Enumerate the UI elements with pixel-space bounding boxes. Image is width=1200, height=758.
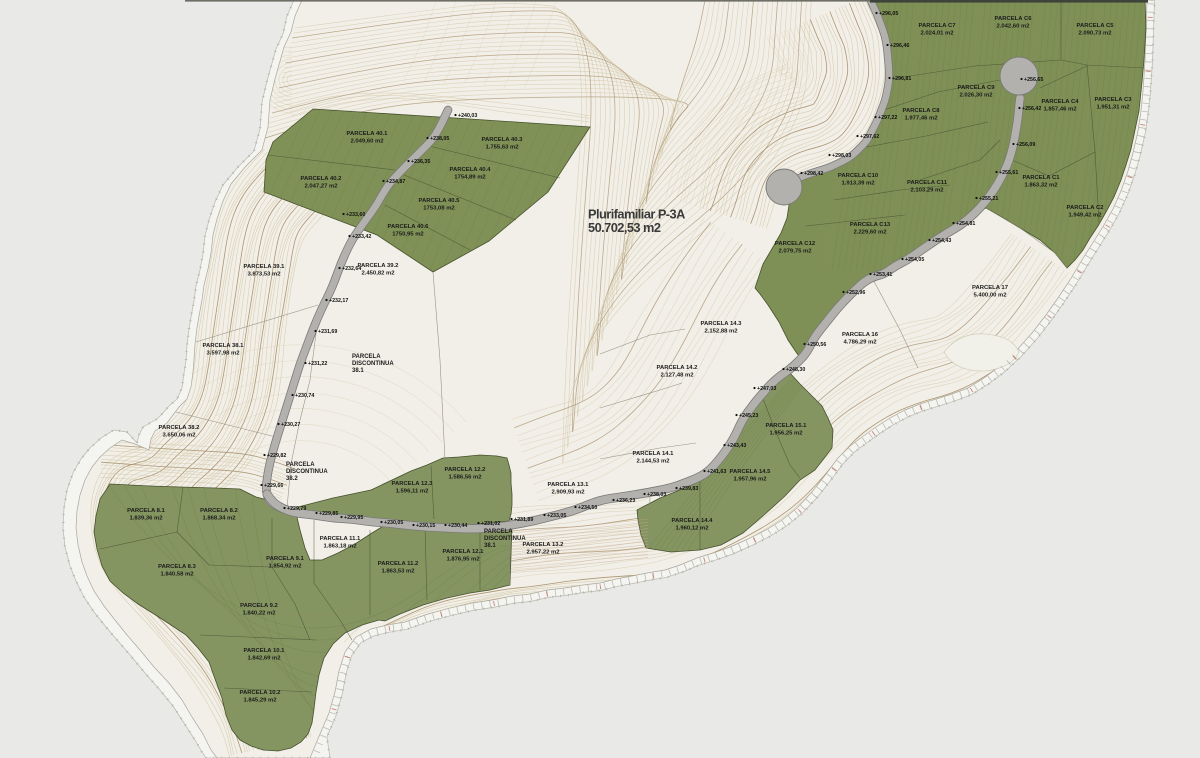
- svg-text:2.229,60 m2: 2.229,60 m2: [853, 230, 887, 236]
- svg-text:DISCONTINUA: DISCONTINUA: [352, 361, 394, 367]
- svg-text:1.596,11 m2: 1.596,11 m2: [396, 489, 429, 495]
- svg-text:+254,05: +254,05: [905, 257, 924, 263]
- svg-text:+248,30: +248,30: [786, 367, 805, 373]
- svg-text:1.951,31 m2: 1.951,31 m2: [1096, 105, 1130, 111]
- svg-text:+229,85: +229,85: [319, 511, 338, 517]
- svg-text:PARCELA 8.2: PARCELA 8.2: [200, 508, 238, 514]
- svg-text:PARCELA 16: PARCELA 16: [842, 332, 879, 338]
- svg-text:PARCELA 17: PARCELA 17: [972, 285, 1009, 291]
- svg-text:2.049,60 m2: 2.049,60 m2: [350, 139, 384, 145]
- svg-text:+255,21: +255,21: [979, 196, 998, 202]
- svg-text:1.755,63 m2: 1.755,63 m2: [485, 145, 519, 151]
- svg-text:3.650,06 m2: 3.650,06 m2: [162, 433, 196, 439]
- svg-text:2.079,75 m2: 2.079,75 m2: [778, 249, 812, 255]
- svg-text:1.842,69 m2: 1.842,69 m2: [247, 656, 281, 662]
- svg-text:+234,87: +234,87: [386, 179, 405, 185]
- svg-text:PARCELA: PARCELA: [352, 354, 381, 360]
- svg-text:2.450,82 m2: 2.450,82 m2: [361, 271, 395, 277]
- svg-text:+255,61: +255,61: [999, 170, 1018, 176]
- svg-text:PARCELA 10.2: PARCELA 10.2: [240, 690, 282, 696]
- svg-text:+230,15: +230,15: [416, 523, 435, 529]
- svg-text:1.840,58 m2: 1.840,58 m2: [160, 572, 194, 578]
- svg-text:+229,66: +229,66: [264, 483, 283, 489]
- svg-text:+230,27: +230,27: [281, 422, 300, 428]
- svg-text:1753,08 m2: 1753,08 m2: [423, 206, 455, 212]
- svg-text:+236,23: +236,23: [616, 498, 635, 504]
- svg-text:PARCELA: PARCELA: [484, 529, 513, 535]
- svg-text:2.047,27 m2: 2.047,27 m2: [304, 184, 338, 190]
- svg-text:PARCELA C10: PARCELA C10: [838, 173, 879, 179]
- svg-text:2.103,29 m2: 2.103,29 m2: [910, 188, 944, 194]
- svg-text:1.956,25 m2: 1.956,25 m2: [769, 431, 803, 437]
- svg-text:PARCELA 40.4: PARCELA 40.4: [450, 167, 492, 173]
- svg-text:+233,42: +233,42: [352, 234, 371, 240]
- svg-text:5.400,00 m2: 5.400,00 m2: [973, 293, 1007, 299]
- svg-text:PARCELA C12: PARCELA C12: [775, 241, 816, 247]
- svg-text:PARCELA C7: PARCELA C7: [919, 23, 957, 29]
- svg-text:PARCELA 40.3: PARCELA 40.3: [482, 137, 524, 143]
- svg-text:1.840,22 m2: 1.840,22 m2: [242, 611, 276, 617]
- svg-text:+296,46: +296,46: [890, 43, 909, 49]
- svg-text:PARCELA 38.2: PARCELA 38.2: [159, 425, 201, 431]
- svg-text:PARCELA 14.1: PARCELA 14.1: [633, 451, 675, 457]
- svg-text:+232,64: +232,64: [342, 266, 361, 272]
- svg-text:PARCELA 40.6: PARCELA 40.6: [388, 224, 430, 230]
- svg-text:2.909,93 m2: 2.909,93 m2: [551, 490, 585, 496]
- svg-text:2.024,01 m2: 2.024,01 m2: [920, 31, 954, 37]
- svg-text:PARCELA 12.1: PARCELA 12.1: [443, 549, 485, 555]
- svg-text:1.957,96 m2: 1.957,96 m2: [733, 477, 767, 483]
- svg-text:1.949,42 m2: 1.949,42 m2: [1068, 213, 1102, 219]
- svg-text:+238,05: +238,05: [430, 136, 449, 142]
- svg-text:38.1: 38.1: [352, 368, 364, 374]
- svg-text:1.839,36 m2: 1.839,36 m2: [129, 516, 163, 522]
- svg-text:PARCELA C6: PARCELA C6: [995, 16, 1033, 22]
- svg-text:1.977,46 m2: 1.977,46 m2: [904, 116, 938, 122]
- svg-text:DISCONTINUA: DISCONTINUA: [286, 469, 328, 475]
- svg-text:PARCELA C5: PARCELA C5: [1077, 23, 1115, 29]
- svg-text:4.786,29 m2: 4.786,29 m2: [843, 340, 877, 346]
- svg-text:PARCELA 10.1: PARCELA 10.1: [244, 648, 286, 654]
- svg-text:PARCELA 40.2: PARCELA 40.2: [301, 176, 343, 182]
- svg-text:2.152,88 m2: 2.152,88 m2: [704, 329, 738, 335]
- svg-text:2.042,60 m2: 2.042,60 m2: [996, 24, 1030, 30]
- svg-text:DISCONTINUA: DISCONTINUA: [484, 536, 526, 542]
- svg-text:+254,81: +254,81: [956, 221, 975, 227]
- svg-text:1.586,56 m2: 1.586,56 m2: [448, 475, 482, 481]
- svg-text:+296,05: +296,05: [879, 11, 898, 17]
- svg-text:38.2: 38.2: [286, 476, 298, 482]
- svg-text:PARCELA 12.2: PARCELA 12.2: [445, 467, 487, 473]
- svg-text:1.857,46 m2: 1.857,46 m2: [1043, 107, 1077, 113]
- svg-text:+256,65: +256,65: [1024, 77, 1043, 83]
- svg-text:+229,79: +229,79: [287, 506, 306, 512]
- svg-text:1.845,29 m2: 1.845,29 m2: [243, 698, 277, 704]
- svg-text:+247,03: +247,03: [757, 386, 776, 392]
- svg-text:PARCELA 13.2: PARCELA 13.2: [523, 542, 565, 548]
- svg-text:+231,02: +231,02: [481, 521, 500, 527]
- svg-text:2.026,30 m2: 2.026,30 m2: [959, 93, 993, 99]
- svg-text:PARCELA C4: PARCELA C4: [1042, 99, 1080, 105]
- svg-text:PARCELA C9: PARCELA C9: [958, 85, 996, 91]
- svg-text:+238,03: +238,03: [647, 492, 666, 498]
- svg-text:3.873,53 m2: 3.873,53 m2: [247, 272, 281, 278]
- svg-text:PARCELA C2: PARCELA C2: [1067, 205, 1105, 211]
- svg-text:+256,42: +256,42: [1022, 106, 1041, 112]
- svg-text:+230,05: +230,05: [384, 520, 403, 526]
- svg-text:PARCELA 39.2: PARCELA 39.2: [358, 263, 400, 269]
- svg-text:PARCELA 15.1: PARCELA 15.1: [766, 423, 808, 429]
- svg-text:+298,42: +298,42: [804, 171, 823, 177]
- svg-text:+240,03: +240,03: [458, 113, 477, 119]
- svg-text:1.854,92 m2: 1.854,92 m2: [268, 564, 302, 570]
- svg-text:PARCELA 11.1: PARCELA 11.1: [320, 536, 361, 542]
- svg-text:+230,44: +230,44: [448, 523, 467, 529]
- svg-text:+231,89: +231,89: [514, 517, 533, 523]
- svg-text:+298,03: +298,03: [832, 153, 851, 159]
- svg-text:1754,89 m2: 1754,89 m2: [454, 175, 486, 181]
- svg-text:+230,74: +230,74: [295, 393, 314, 399]
- svg-text:+250,56: +250,56: [807, 342, 826, 348]
- svg-text:1.863,53 m2: 1.863,53 m2: [381, 569, 415, 575]
- svg-text:PARCELA C8: PARCELA C8: [903, 108, 941, 114]
- svg-text:1.863,18 m2: 1.863,18 m2: [323, 544, 357, 550]
- svg-text:+229,95: +229,95: [344, 515, 363, 521]
- svg-text:PARCELA 14.3: PARCELA 14.3: [701, 321, 743, 327]
- svg-text:1.876,95 m2: 1.876,95 m2: [446, 557, 480, 563]
- svg-text:+234,50: +234,50: [578, 505, 597, 511]
- svg-text:PARCELA C11: PARCELA C11: [907, 180, 948, 186]
- svg-text:1.913,39 m2: 1.913,39 m2: [841, 181, 875, 187]
- svg-text:+241,63: +241,63: [707, 469, 726, 475]
- svg-text:1.960,12 m2: 1.960,12 m2: [675, 526, 709, 532]
- svg-text:PARCELA 8.1: PARCELA 8.1: [127, 508, 165, 514]
- svg-text:PARCELA: PARCELA: [286, 462, 315, 468]
- svg-text:PARCELA 39.1: PARCELA 39.1: [244, 264, 286, 270]
- svg-text:+297,22: +297,22: [878, 115, 897, 121]
- svg-text:+229,82: +229,82: [267, 453, 286, 459]
- svg-text:+236,35: +236,35: [411, 159, 430, 165]
- svg-text:PARCELA 40.1: PARCELA 40.1: [347, 131, 389, 137]
- svg-text:+231,69: +231,69: [318, 329, 337, 335]
- svg-text:+231,22: +231,22: [308, 361, 327, 367]
- svg-text:+254,43: +254,43: [932, 238, 951, 244]
- svg-text:PARCELA 14.4: PARCELA 14.4: [672, 518, 714, 524]
- svg-text:PARCELA 8.3: PARCELA 8.3: [158, 564, 196, 570]
- svg-text:2.957,22 m2: 2.957,22 m2: [526, 550, 560, 556]
- svg-text:PARCELA C3: PARCELA C3: [1095, 97, 1133, 103]
- svg-text:+252,96: +252,96: [846, 290, 865, 296]
- svg-text:1.868,34 m2: 1.868,34 m2: [202, 516, 236, 522]
- svg-text:2.090,73 m2: 2.090,73 m2: [1078, 31, 1112, 37]
- svg-text:+233,60: +233,60: [346, 212, 365, 218]
- svg-text:PARCELA 13.1: PARCELA 13.1: [548, 482, 590, 488]
- svg-text:PARCELA 14.2: PARCELA 14.2: [657, 365, 699, 371]
- svg-text:+243,43: +243,43: [727, 443, 746, 449]
- svg-text:1.863,32 m2: 1.863,32 m2: [1024, 183, 1058, 189]
- svg-text:+232,17: +232,17: [329, 298, 348, 304]
- svg-text:+245,23: +245,23: [739, 413, 758, 419]
- svg-text:+233,05: +233,05: [547, 513, 566, 519]
- svg-text:+253,41: +253,41: [873, 272, 892, 278]
- svg-text:+256,09: +256,09: [1016, 142, 1035, 148]
- svg-text:1750,95 m2: 1750,95 m2: [392, 232, 424, 238]
- svg-text:PARCELA 38.1: PARCELA 38.1: [203, 343, 245, 349]
- svg-text:PARCELA C13: PARCELA C13: [850, 222, 891, 228]
- svg-text:3.597,98 m2: 3.597,98 m2: [206, 351, 240, 357]
- svg-text:PARCELA 14.5: PARCELA 14.5: [730, 469, 772, 475]
- svg-text:+297,62: +297,62: [860, 134, 879, 140]
- svg-text:2.144,53 m2: 2.144,53 m2: [636, 459, 670, 465]
- svg-text:+296,81: +296,81: [892, 76, 911, 82]
- svg-text:+239,83: +239,83: [679, 486, 698, 492]
- svg-text:50.702,53 m2: 50.702,53 m2: [588, 220, 661, 235]
- svg-text:PARCELA C1: PARCELA C1: [1023, 175, 1061, 181]
- svg-text:38.1: 38.1: [484, 543, 496, 549]
- svg-text:PARCELA 9.2: PARCELA 9.2: [240, 603, 278, 609]
- svg-text:PARCELA 9.1: PARCELA 9.1: [266, 556, 304, 562]
- svg-text:PARCELA 40.5: PARCELA 40.5: [419, 198, 461, 204]
- svg-text:2.127,48 m2: 2.127,48 m2: [660, 373, 694, 379]
- svg-text:PARCELA 12.3: PARCELA 12.3: [392, 481, 434, 487]
- svg-text:PARCELA 11.2: PARCELA 11.2: [378, 561, 419, 567]
